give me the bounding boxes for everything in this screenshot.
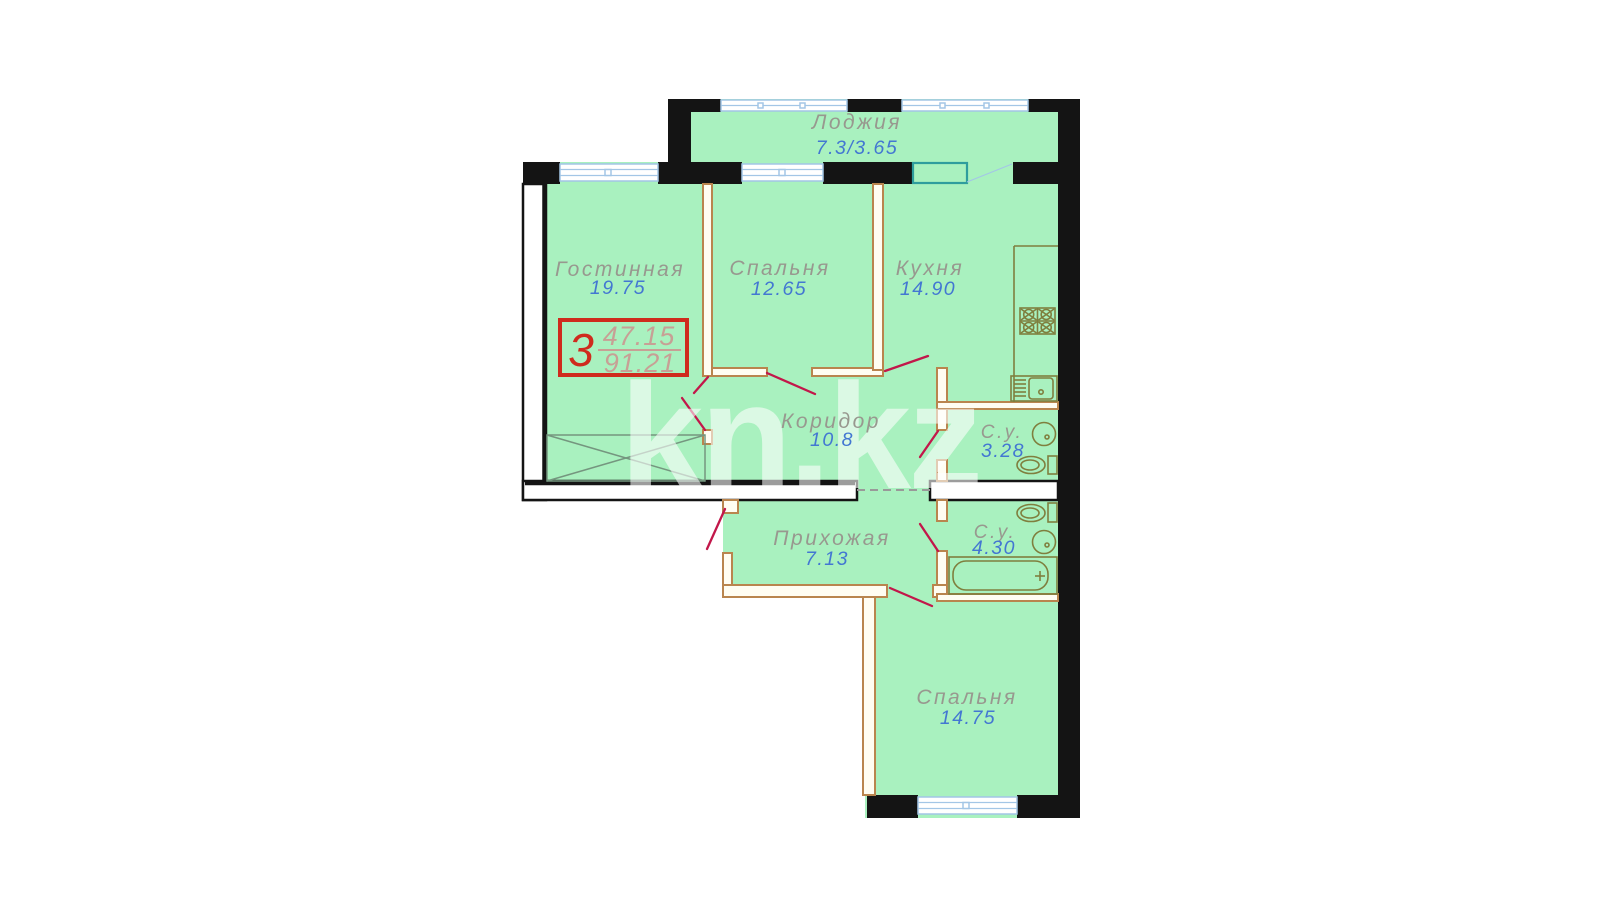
- stove-icon: [1020, 308, 1055, 334]
- room-area-bedroom-2: 14.75: [940, 707, 996, 729]
- partition: [863, 597, 875, 795]
- window: [560, 164, 658, 181]
- partition: [723, 585, 887, 597]
- room-area-bathroom-1: 3.28: [981, 440, 1025, 462]
- info-box: 3 47.15 91.21: [560, 320, 687, 378]
- partition: [723, 553, 732, 585]
- room-area-bathroom-2: 4.30: [972, 537, 1016, 559]
- room-area-kitchen: 14.90: [900, 278, 956, 300]
- room-label-loggia: Лоджия: [810, 111, 902, 134]
- wall: [867, 795, 918, 818]
- wall-right: [1058, 99, 1080, 818]
- wall: [668, 99, 691, 162]
- wall: [523, 162, 560, 184]
- room-label-hallway: Прихожая: [773, 527, 890, 550]
- partition: [703, 184, 712, 376]
- rooms-count: 3: [568, 324, 594, 376]
- partition: [873, 184, 883, 370]
- room-area-loggia: 7.3/3.65: [816, 137, 898, 159]
- window: [918, 797, 1017, 814]
- floor-plan-svg: kn.kz Лоджия 7.3/3.65 Гостинная 19.75 Сп…: [0, 0, 1600, 900]
- room-area-hallway: 7.13: [805, 548, 849, 570]
- window: [902, 100, 1028, 111]
- room-label-bedroom-1: Спальня: [729, 257, 830, 280]
- room-label-bedroom-2: Спальня: [916, 686, 1017, 709]
- total-area-value: 91.21: [604, 348, 677, 378]
- partition: [937, 594, 1058, 601]
- wall: [823, 162, 913, 184]
- living-area-value: 47.15: [603, 321, 676, 351]
- room-label-kitchen: Кухня: [896, 257, 964, 280]
- wall: [1013, 162, 1080, 184]
- room-area-corridor: 10.8: [810, 429, 854, 451]
- wall: [658, 162, 742, 184]
- floor-plan-canvas: kn.kz Лоджия 7.3/3.65 Гостинная 19.75 Сп…: [0, 0, 1600, 900]
- room-area-bedroom-1: 12.65: [751, 278, 807, 300]
- wall: [1017, 795, 1080, 818]
- room-area-living: 19.75: [590, 277, 646, 299]
- window: [721, 100, 847, 111]
- window: [742, 164, 823, 181]
